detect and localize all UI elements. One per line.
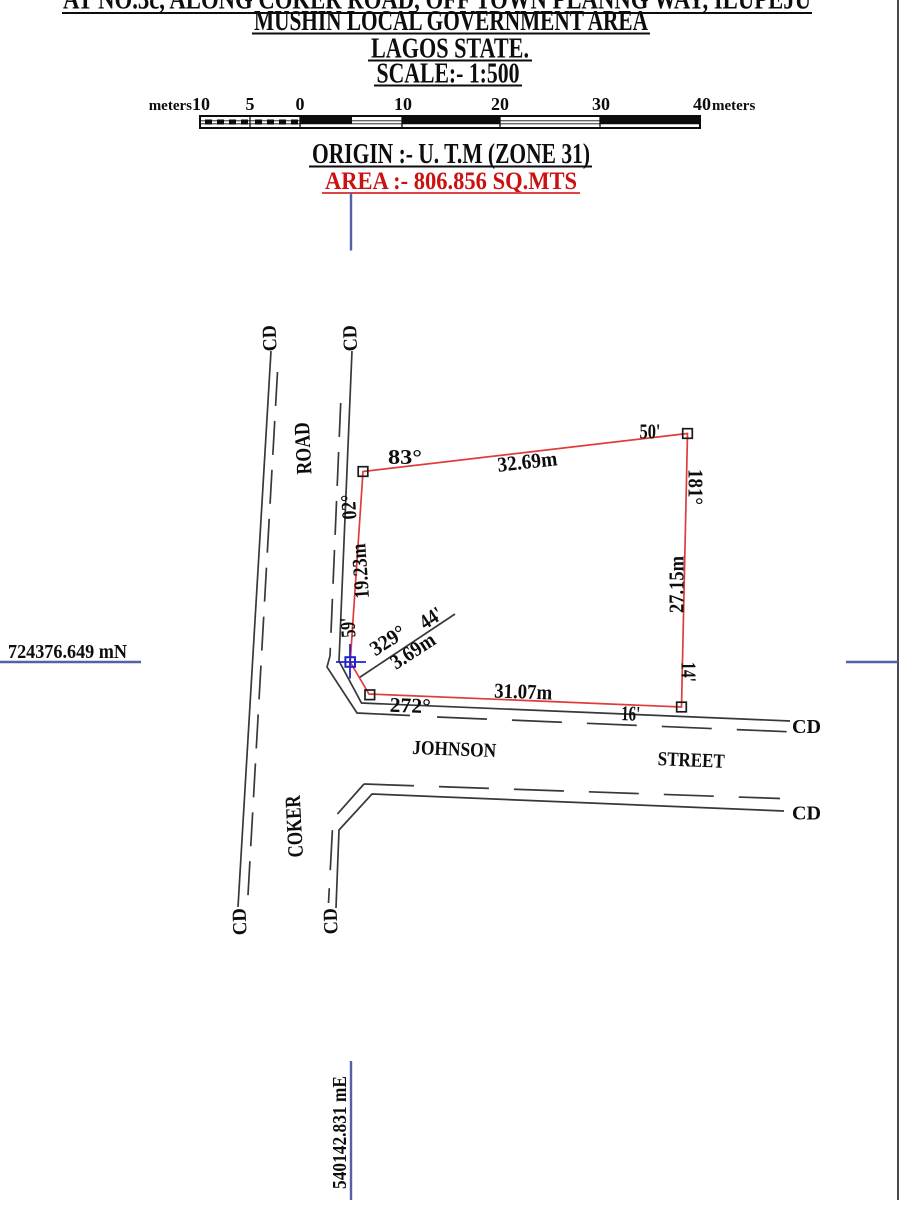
svg-text:181°: 181° <box>684 469 708 505</box>
svg-text:CD: CD <box>339 325 362 352</box>
svg-text:16': 16' <box>621 701 641 726</box>
svg-text:20: 20 <box>491 94 509 114</box>
svg-text:COKER: COKER <box>280 794 308 858</box>
svg-text:CD: CD <box>320 908 343 935</box>
svg-text:AREA :- 806.856 SQ.MTS: AREA :- 806.856 SQ.MTS <box>325 168 577 195</box>
svg-text:02°: 02° <box>336 494 362 521</box>
svg-text:272°: 272° <box>389 693 431 718</box>
svg-text:40: 40 <box>693 94 711 114</box>
svg-text:CD: CD <box>259 325 282 352</box>
svg-text:27.15m: 27.15m <box>665 556 689 613</box>
svg-text:10: 10 <box>192 94 210 114</box>
svg-text:ROAD: ROAD <box>289 422 317 475</box>
svg-text:JOHNSON: JOHNSON <box>412 737 497 762</box>
svg-text:59': 59' <box>335 617 360 639</box>
svg-text:CD: CD <box>229 908 252 936</box>
svg-text:5: 5 <box>246 94 255 114</box>
svg-text:STREET: STREET <box>657 748 725 773</box>
svg-text:540142.831 mE: 540142.831 mE <box>329 1076 351 1189</box>
svg-text:meters: meters <box>712 98 755 114</box>
svg-text:31.07m: 31.07m <box>494 678 553 704</box>
svg-text:30: 30 <box>592 94 610 114</box>
svg-text:ORIGIN :- U. T.M (ZONE 31): ORIGIN :- U. T.M (ZONE 31) <box>312 139 590 170</box>
svg-text:meters: meters <box>149 98 192 114</box>
svg-text:CD: CD <box>792 716 821 738</box>
svg-text:0: 0 <box>296 94 305 114</box>
svg-text:83°: 83° <box>388 445 422 469</box>
svg-text:10: 10 <box>394 94 412 114</box>
svg-text:724376.649 mN: 724376.649 mN <box>8 641 127 663</box>
svg-text:50': 50' <box>640 420 661 444</box>
svg-text:CD: CD <box>792 803 821 825</box>
svg-text:14': 14' <box>677 662 701 682</box>
svg-text:19.23m: 19.23m <box>346 542 374 599</box>
